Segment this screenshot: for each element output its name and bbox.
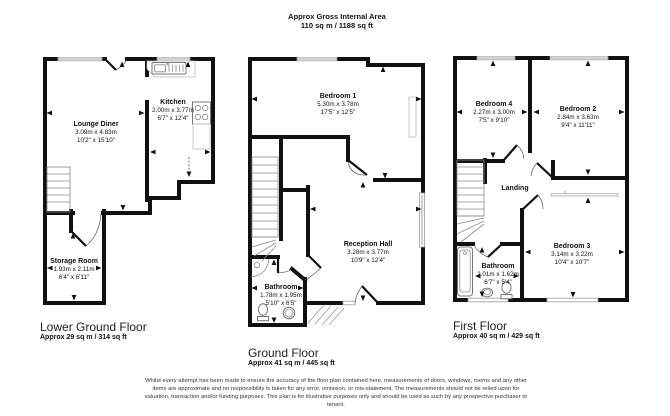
floor-title-first: First Floor [453, 319, 507, 333]
room-label-bedroom-3: Bedroom 3 3.14m x 3.22m 10'4" x 10'7" [551, 243, 593, 267]
room-imperial: 5'10" x 6'5" [260, 300, 302, 308]
room-name: Bedroom 1 [317, 93, 359, 101]
room-label-bedroom-1: Bedroom 1 5.30m x 3.78m 17'5" x 12'5" [317, 93, 359, 117]
room-label-lounge-diner: Lounge Diner 3.09m x 4.83m 10'2" x 15'10… [73, 121, 118, 145]
room-imperial: 7'5" x 9'10" [473, 117, 515, 125]
bathtub-icon [458, 247, 473, 296]
kitchen-unit [193, 124, 210, 149]
stairs-icon [252, 157, 278, 261]
room-name: Reception Hall [344, 241, 393, 249]
room-imperial: 10'2" x 15'10" [73, 137, 118, 145]
room-label-kitchen: Kitchen 2.00m x 3.77m 6'7" x 12'4" [152, 99, 194, 123]
room-name: Bedroom 2 [557, 106, 599, 114]
room-metric: 2.27m x 3.00m [473, 109, 515, 117]
floor-area-lower: Approx 29 sq m / 314 sq ft [40, 334, 127, 341]
room-imperial: 17'5" x 12'5" [317, 109, 359, 117]
stove-icon [193, 102, 211, 124]
room-imperial: 10'9" x 12'4" [344, 257, 393, 265]
room-name: Bedroom 3 [551, 243, 593, 251]
radiator [409, 97, 416, 137]
room-metric: 2.01m x 1.62m [477, 271, 519, 279]
wardrobe [551, 191, 618, 197]
room-metric: 1.78m x 1.95m [260, 292, 302, 300]
door-swing [71, 59, 127, 246]
room-name: Storage Room [50, 258, 98, 266]
basin-icon [283, 307, 295, 319]
floor-title-lower: Lower Ground Floor [40, 320, 147, 334]
stairs-icon [457, 160, 484, 242]
room-label-bedroom-4: Bedroom 4 2.27m x 3.00m 7'5" x 9'10" [473, 101, 515, 125]
floor-area-first: Approx 40 sq m / 429 sq ft [453, 333, 540, 340]
room-metric: 2.00m x 3.77m [152, 107, 194, 115]
room-name: Lounge Diner [73, 121, 118, 129]
floor-plan-lower-ground: Lounge Diner 3.09m x 4.83m 10'2" x 15'10… [43, 57, 215, 307]
stairs-icon [47, 167, 70, 212]
room-label-bathroom-first: Bathroom 2.01m x 1.62m 6'7" x 5'4" [477, 263, 519, 287]
room-name: Kitchen [152, 99, 194, 107]
room-label-bathroom-ground: Bathroom 1.78m x 1.95m 5'10" x 6'5" [260, 284, 302, 308]
room-metric: 3.14m x 3.22m [551, 251, 593, 259]
room-imperial: 6'7" x 12'4" [152, 115, 194, 123]
gross-area-title: Approx Gross Internal Area [87, 12, 587, 21]
room-metric: 2.84m x 3.63m [557, 114, 599, 122]
room-label-landing: Landing [501, 185, 528, 193]
room-label-storage-room: Storage Room 1.93m x 2.11m 6'4" x 6'11" [50, 258, 98, 282]
entry-steps [308, 305, 344, 325]
disclaimer-text: Whilst every attempt has been made to en… [140, 378, 532, 410]
door-swing [278, 160, 378, 303]
floor-plan-ground: Bedroom 1 5.30m x 3.78m 17'5" x 12'5" Re… [248, 57, 425, 329]
room-imperial: 6'7" x 5'4" [477, 279, 519, 287]
room-imperial: 9'4" x 11'11" [557, 122, 599, 130]
shower-icon [251, 259, 269, 277]
gross-area-value: 110 sq m / 1188 sq ft [87, 21, 587, 30]
room-name: Bedroom 4 [473, 101, 515, 109]
window [58, 57, 190, 61]
room-label-reception-hall: Reception Hall 3.28m x 3.77m 10'9" x 12'… [344, 241, 393, 265]
room-name: Bathroom [260, 284, 302, 292]
floor-title-ground: Ground Floor [248, 346, 319, 360]
room-name: Bathroom [477, 263, 519, 271]
floor-area-ground: Approx 41 sq m / 445 sq ft [248, 360, 335, 367]
room-metric: 1.93m x 2.11m [50, 266, 98, 274]
room-metric: 3.28m x 3.77m [344, 249, 393, 257]
room-name: Landing [501, 185, 528, 193]
room-label-bedroom-2: Bedroom 2 2.84m x 3.63m 9'4" x 11'11" [557, 106, 599, 130]
room-imperial: 6'4" x 6'11" [50, 274, 98, 282]
room-metric: 5.30m x 3.78m [317, 101, 359, 109]
floorplan-page: Approx Gross Internal Area 110 sq m / 11… [0, 0, 670, 416]
room-metric: 3.09m x 4.83m [73, 129, 118, 137]
kitchen-sink-icon [152, 63, 186, 75]
room-imperial: 10'4" x 10'7" [551, 259, 593, 267]
floor-plan-first: Bedroom 4 2.27m x 3.00m 7'5" x 9'10" Bed… [453, 56, 629, 304]
